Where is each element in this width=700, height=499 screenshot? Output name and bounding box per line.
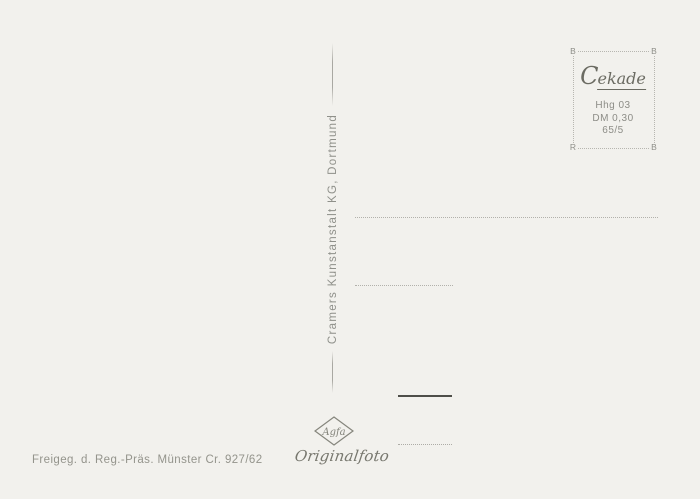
originalfoto-script-text: Originalfoto xyxy=(294,447,391,465)
censor-approval-note: Freigeg. d. Reg.-Präs. Münster Cr. 927/6… xyxy=(32,454,263,466)
stamp-corner-mark-top-right: B xyxy=(650,47,658,55)
agfa-logo-text: Agfa xyxy=(321,427,345,438)
short-dotted-line xyxy=(398,444,452,445)
stamp-info-line-3: 65/5 xyxy=(563,125,663,138)
cekade-initial: C xyxy=(580,62,597,90)
stamp-corner-mark-top-left: B xyxy=(569,47,577,55)
address-line-1 xyxy=(355,217,658,218)
stamp-info-line-2: DM 0,30 xyxy=(563,113,663,126)
stamp-corner-mark-bottom-left: R xyxy=(569,143,577,151)
stamp-corner-mark-bottom-right: B xyxy=(650,143,658,151)
cekade-brand-logo: Cekade xyxy=(580,62,646,90)
address-line-2 xyxy=(355,285,453,286)
agfa-diamond-icon: Agfa xyxy=(314,416,354,446)
stamp-box: B B R B Cekade Hhg 03 DM 0,30 65/5 xyxy=(563,42,663,156)
stamp-info-lines: Hhg 03 DM 0,30 65/5 xyxy=(563,100,663,138)
divider-line-top-segment xyxy=(332,43,333,106)
short-solid-line xyxy=(398,395,452,397)
cekade-rest: ekade xyxy=(597,69,645,90)
divider-line-bottom-segment xyxy=(332,351,333,393)
stamp-info-line-1: Hhg 03 xyxy=(563,100,663,113)
publisher-imprint-vertical-text: Cramers Kunstanstalt KG, Dortmund xyxy=(327,114,339,344)
